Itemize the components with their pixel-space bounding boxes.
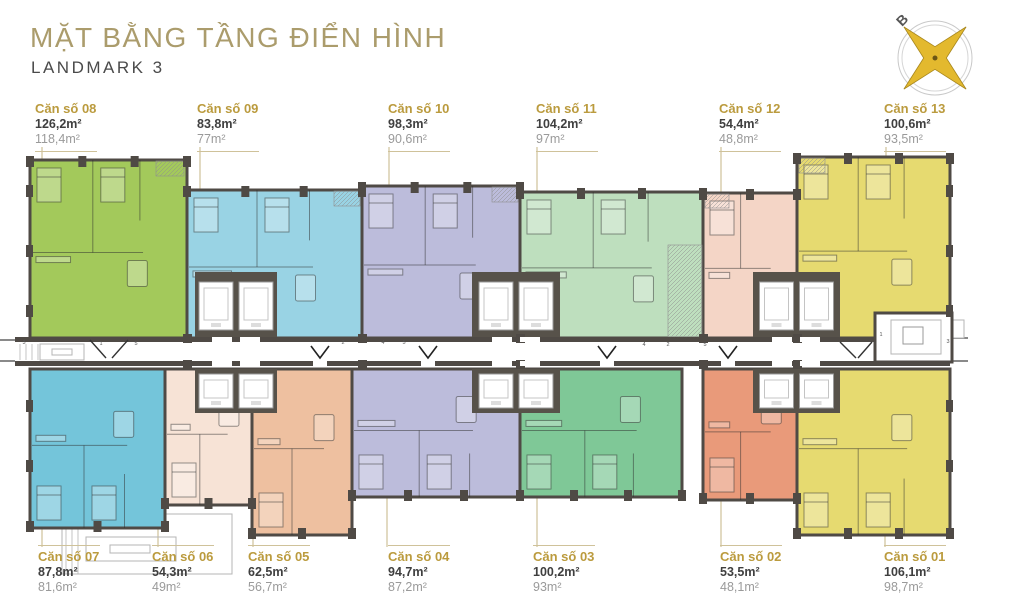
column xyxy=(78,156,86,167)
table-furniture xyxy=(114,411,134,437)
unit-gross-area: 100,6m² xyxy=(884,117,946,132)
door-swing xyxy=(90,340,106,358)
column xyxy=(348,490,356,501)
bed-furniture xyxy=(369,194,393,228)
unit-label-09: Căn số 09 83,8m² 77m² xyxy=(197,101,259,152)
column xyxy=(463,182,471,193)
kitchen-counter xyxy=(258,439,280,445)
elevator-door xyxy=(491,323,501,327)
unit-gross-area: 83,8m² xyxy=(197,117,259,132)
elevator-door xyxy=(772,401,782,405)
door-gap xyxy=(421,361,435,366)
column xyxy=(793,493,801,504)
column xyxy=(161,498,169,509)
unit-gross-area: 106,1m² xyxy=(884,565,946,580)
column xyxy=(699,360,708,369)
column xyxy=(26,400,33,412)
dimension-marker: 2 xyxy=(341,340,344,346)
unit-net-area: 48,1m² xyxy=(720,580,782,595)
elevator-door xyxy=(251,323,261,327)
dimension-marker: 2 xyxy=(666,342,669,348)
unit-gross-area: 98,3m² xyxy=(388,117,450,132)
column xyxy=(26,245,33,257)
elevator-opening xyxy=(520,337,540,342)
kitchen-counter xyxy=(358,420,395,426)
column xyxy=(248,498,256,509)
unit-net-area: 90,6m² xyxy=(388,132,450,147)
kitchen-counter xyxy=(36,257,71,263)
unit-net-area: 81,6m² xyxy=(38,580,100,595)
kitchen-counter xyxy=(36,435,66,441)
entry-arrow xyxy=(311,346,329,358)
column xyxy=(946,245,953,257)
unit-gross-area: 94,7m² xyxy=(388,565,450,580)
table-furniture xyxy=(633,276,653,302)
column xyxy=(844,528,852,539)
unit-label-12: Căn số 12 54,4m² 48,8m² xyxy=(719,101,781,152)
column xyxy=(793,153,801,164)
column xyxy=(26,156,34,167)
floorplan-drawing: 31524542513 xyxy=(0,0,1024,612)
elevator-door xyxy=(491,401,501,405)
table-furniture xyxy=(314,415,334,441)
unit-label-13: Căn số 13 100,6m² 93,5m² xyxy=(884,101,946,152)
dimension-marker: 1 xyxy=(99,341,102,347)
elevator-door xyxy=(211,323,221,327)
elevator-door xyxy=(812,401,822,405)
elevator-door xyxy=(251,401,261,405)
column xyxy=(570,490,578,501)
column xyxy=(746,493,754,504)
dimension-marker: 5 xyxy=(134,341,137,347)
unit-net-area: 56,7m² xyxy=(248,580,310,595)
bed-furniture xyxy=(427,455,451,489)
bed-furniture xyxy=(37,486,61,520)
bed-furniture xyxy=(259,493,283,527)
unit-name: Căn số 01 xyxy=(884,549,946,565)
unit-net-area: 48,8m² xyxy=(719,132,781,147)
elevator-opening xyxy=(800,361,820,366)
kitchen-counter xyxy=(709,422,730,428)
unit-name: Căn số 08 xyxy=(35,101,97,117)
bed-furniture xyxy=(527,455,551,489)
column xyxy=(946,460,953,472)
column xyxy=(638,188,646,199)
column xyxy=(946,153,954,164)
balcony-hatch xyxy=(156,161,184,176)
floorplan-page: MẶT BẰNG TẦNG ĐIỂN HÌNH LANDMARK 3 B 315… xyxy=(0,0,1024,612)
unit-label-08: Căn số 08 126,2m² 118,4m² xyxy=(35,101,97,152)
column xyxy=(298,528,306,539)
dimension-marker: 5 xyxy=(402,340,405,346)
unit-name: Căn số 09 xyxy=(197,101,259,117)
column xyxy=(241,186,249,197)
elevator-opening xyxy=(492,361,512,366)
elevator-door xyxy=(531,323,541,327)
dimension-marker: 3 xyxy=(22,340,25,346)
entry-arrow xyxy=(598,346,616,358)
column xyxy=(946,400,953,412)
unit-label-06: Căn số 06 54,3m² 49m² xyxy=(152,545,214,595)
elevator-opening xyxy=(240,361,260,366)
table-furniture xyxy=(127,261,147,287)
elevator-opening xyxy=(212,361,232,366)
column xyxy=(94,521,102,532)
bed-furniture xyxy=(601,200,625,234)
column xyxy=(183,360,192,369)
column xyxy=(624,490,632,501)
column xyxy=(793,189,801,200)
elevator-opening xyxy=(212,337,232,342)
table-furniture xyxy=(620,396,640,422)
entry-arrow xyxy=(419,346,437,358)
kitchen-counter xyxy=(368,269,403,275)
column xyxy=(460,490,468,501)
bed-furniture xyxy=(359,455,383,489)
column xyxy=(746,189,754,200)
bed-furniture xyxy=(866,493,890,527)
bed-furniture xyxy=(101,168,125,202)
unit-net-area: 97m² xyxy=(536,132,598,147)
unit-label-02: Căn số 02 53,5m² 48,1m² xyxy=(720,545,782,595)
column xyxy=(946,185,953,197)
dimension-marker: 4 xyxy=(381,340,384,346)
bed-furniture xyxy=(710,458,734,492)
column xyxy=(26,460,33,472)
unit-name: Căn số 04 xyxy=(388,549,450,565)
column xyxy=(404,490,412,501)
door-swing xyxy=(112,340,128,358)
column xyxy=(577,188,585,199)
column xyxy=(699,189,707,200)
column xyxy=(161,521,169,532)
kitchen-counter xyxy=(171,424,190,430)
unit-gross-area: 54,3m² xyxy=(152,565,214,580)
bed-furniture xyxy=(866,165,890,199)
column xyxy=(699,493,707,504)
column xyxy=(183,334,192,343)
column xyxy=(205,498,213,509)
elevator-opening xyxy=(772,361,792,366)
unit-name: Căn số 07 xyxy=(38,549,100,565)
column xyxy=(358,334,367,343)
elevator-opening xyxy=(772,337,792,342)
unit-label-10: Căn số 10 98,3m² 90,6m² xyxy=(388,101,450,152)
column xyxy=(26,305,33,317)
bed-furniture xyxy=(265,198,289,232)
column xyxy=(516,490,524,501)
unit-name: Căn số 06 xyxy=(152,549,214,565)
bed-furniture xyxy=(527,200,551,234)
kitchen-counter xyxy=(526,420,562,426)
unit-gross-area: 54,4m² xyxy=(719,117,781,132)
column xyxy=(844,153,852,164)
right-lobby-core xyxy=(903,327,923,344)
entrance-canopy-mat xyxy=(110,545,150,553)
bed-furniture xyxy=(593,455,617,489)
column xyxy=(895,528,903,539)
column xyxy=(248,528,256,539)
table-furniture xyxy=(892,259,912,285)
elevator-opening xyxy=(240,337,260,342)
elevator-opening xyxy=(520,361,540,366)
column xyxy=(183,186,191,197)
kitchen-counter xyxy=(709,272,730,278)
entry-arrow xyxy=(719,346,737,358)
unit-gross-area: 100,2m² xyxy=(533,565,595,580)
kitchen-counter xyxy=(803,255,837,261)
column xyxy=(26,185,33,197)
column xyxy=(131,156,139,167)
elevator-opening xyxy=(800,337,820,342)
unit-name: Căn số 05 xyxy=(248,549,310,565)
unit-net-area: 49m² xyxy=(152,580,214,595)
elevator-door xyxy=(531,401,541,405)
unit-net-area: 93,5m² xyxy=(884,132,946,147)
balcony-hatch xyxy=(334,191,360,206)
unit-gross-area: 126,2m² xyxy=(35,117,97,132)
column xyxy=(358,360,367,369)
balcony-hatch xyxy=(668,245,702,337)
column xyxy=(516,188,524,199)
door-swing xyxy=(840,342,856,358)
dimension-marker: 5 xyxy=(703,342,706,348)
table-furniture xyxy=(892,415,912,441)
balcony-hatch xyxy=(705,194,729,208)
column xyxy=(26,521,34,532)
unit-name: Căn số 11 xyxy=(536,101,598,117)
unit-name: Căn số 12 xyxy=(719,101,781,117)
unit-label-11: Căn số 11 104,2m² 97m² xyxy=(536,101,598,152)
unit-name: Căn số 13 xyxy=(884,101,946,117)
unit-net-area: 77m² xyxy=(197,132,259,147)
bed-furniture xyxy=(433,194,457,228)
column xyxy=(946,528,954,539)
entry-ramp xyxy=(40,344,84,360)
dimension-marker: 3 xyxy=(946,339,949,345)
bed-furniture xyxy=(172,463,196,497)
unit-gross-area: 87,8m² xyxy=(38,565,100,580)
column xyxy=(358,182,366,193)
bed-furniture xyxy=(194,198,218,232)
unit-label-04: Căn số 04 94,7m² 87,2m² xyxy=(388,545,450,595)
bed-furniture xyxy=(37,168,61,202)
dimension-marker: 1 xyxy=(879,332,882,338)
balcony-hatch xyxy=(799,158,825,173)
balcony-hatch xyxy=(492,187,518,202)
unit-gross-area: 104,2m² xyxy=(536,117,598,132)
unit-label-07: Căn số 07 87,8m² 81,6m² xyxy=(38,545,100,595)
elevator-door xyxy=(772,323,782,327)
unit-label-03: Căn số 03 100,2m² 93m² xyxy=(533,545,595,595)
unit-label-01: Căn số 01 106,1m² 98,7m² xyxy=(884,545,946,595)
unit-name: Căn số 03 xyxy=(533,549,595,565)
unit-label-05: Căn số 05 62,5m² 56,7m² xyxy=(248,545,310,595)
unit-net-area: 87,2m² xyxy=(388,580,450,595)
unit-net-area: 118,4m² xyxy=(35,132,97,147)
elevator-door xyxy=(812,323,822,327)
door-gap xyxy=(313,361,327,366)
unit-gross-area: 62,5m² xyxy=(248,565,310,580)
bed-furniture xyxy=(92,486,116,520)
column xyxy=(411,182,419,193)
kitchen-counter xyxy=(803,439,837,445)
unit-name: Căn số 02 xyxy=(720,549,782,565)
unit-name: Căn số 10 xyxy=(388,101,450,117)
column xyxy=(183,156,191,167)
unit-net-area: 93m² xyxy=(533,580,595,595)
table-furniture xyxy=(296,275,316,301)
exterior-stair xyxy=(952,320,964,338)
door-gap xyxy=(600,361,614,366)
column xyxy=(895,153,903,164)
dimension-marker: 4 xyxy=(642,342,645,348)
door-swing xyxy=(858,342,872,358)
column xyxy=(793,528,801,539)
column xyxy=(946,305,953,317)
unit-gross-area: 53,5m² xyxy=(720,565,782,580)
column xyxy=(678,490,686,501)
unit-net-area: 98,7m² xyxy=(884,580,946,595)
bed-furniture xyxy=(804,493,828,527)
column xyxy=(348,528,356,539)
elevator-door xyxy=(211,401,221,405)
column xyxy=(300,186,308,197)
elevator-opening xyxy=(492,337,512,342)
door-gap xyxy=(721,361,735,366)
